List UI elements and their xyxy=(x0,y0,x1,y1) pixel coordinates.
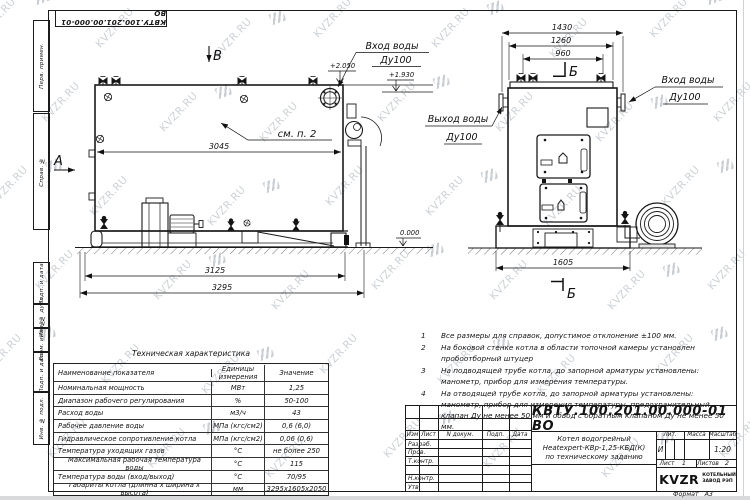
note-item: 2На боковой стенке котла в области топоч… xyxy=(421,343,731,365)
margin-box-vzam: Взам. инв. № xyxy=(33,327,50,353)
margin-box-perv: Перв. примен. xyxy=(33,20,50,112)
table-cell: Гидравлическое сопротивление котла xyxy=(54,433,212,445)
table-cell: Рабочее давление воды xyxy=(54,420,212,432)
sheet-label: Лист xyxy=(658,460,676,467)
spec-table-body: Номинальная мощностьМВт1,25Диапазон рабо… xyxy=(54,381,328,495)
table-row: Температура уходящих газов°Сне более 250 xyxy=(54,444,328,457)
change-col-header: Дата xyxy=(509,432,531,439)
note-text: На подводящей трубе котла, до запорной а… xyxy=(441,366,731,388)
table-cell: 50-100 xyxy=(265,395,328,407)
table-row: Габариты котла (длинна х ширина х высота… xyxy=(54,483,328,496)
scale-label: Масштаб xyxy=(709,432,736,439)
table-cell: 43 xyxy=(265,407,328,419)
stamp-doc-number: КВТУ.100.201.00.000-01 ВО xyxy=(56,10,166,28)
table-cell: Габариты котла (длинна х ширина х высота… xyxy=(54,484,212,496)
margin-box-sprav: Справ. № xyxy=(33,113,50,230)
sheet-edge-bottom xyxy=(0,496,750,500)
margin-box-podp2: Подп. и дата xyxy=(33,351,50,393)
company-name: КОТЕЛЬНЫЙ ЗАВОД РЭП xyxy=(702,473,736,484)
change-col-header: Лист xyxy=(419,432,438,439)
product-name-line: Heatexpert-КВр-1,25-КБД(К) xyxy=(543,444,645,453)
table-cell: МПа (кгс/см2) xyxy=(212,433,265,445)
table-row: Максимальная рабочая температура воды°С1… xyxy=(54,457,328,470)
note-number: 1 xyxy=(421,331,441,342)
note-item: 3На подводящей трубе котла, до запорной … xyxy=(421,366,731,388)
table-row: Гидравлическое сопротивление котлаМПа (к… xyxy=(54,432,328,445)
title-block: КВТУ.100.201.00.000-01 ВО Изм Лист N док… xyxy=(405,405,736,491)
lit-value: И xyxy=(656,439,665,459)
change-col-header: N докум. xyxy=(438,432,482,439)
format-label: Формат xyxy=(673,491,699,498)
table-cell: % xyxy=(212,395,265,407)
table-cell: Расход воды xyxy=(54,407,212,419)
product-name-line: Котел водогрейный xyxy=(557,435,631,444)
margin-box-inv-podl: Инв. № подл. xyxy=(33,391,50,445)
sheet-value: 1 xyxy=(676,459,692,467)
table-cell: °С xyxy=(212,458,265,470)
product-name: Котел водогрейный Heatexpert-КВр-1,25-КБ… xyxy=(532,433,656,464)
table-cell: °С xyxy=(212,445,265,457)
note-number: 3 xyxy=(421,366,441,388)
table-row: Рабочее давление водыМПа (кгс/см2)0,6 (6… xyxy=(54,419,328,432)
top-stamp-doc-number: КВТУ.100.201.00.000-01 ВО xyxy=(55,10,167,27)
note-item: 1Все размеры для справок, допустимое отк… xyxy=(421,331,731,342)
company-name-line: ЗАВОД РЭП xyxy=(702,479,736,485)
company-logo: KVZR КОТЕЛЬНЫЙ ЗАВОД РЭП xyxy=(657,468,735,490)
table-cell: м3/ч xyxy=(212,407,265,419)
table-cell: 0,06 (0,6) xyxy=(265,433,328,445)
table-row: Номинальная мощностьМВт1,25 xyxy=(54,381,328,394)
change-col-header: Изм xyxy=(406,432,419,439)
format-value: А3 xyxy=(705,491,713,498)
table-row: Диапазон рабочего регулирования%50-100 xyxy=(54,394,328,407)
table-cell: 3295х1605х2050 xyxy=(265,484,328,496)
note-text: Все размеры для справок, допустимое откл… xyxy=(441,331,731,342)
mass-label: Масса xyxy=(684,432,709,439)
format-note: Формат А3 xyxy=(648,490,738,499)
sheets-label: Листов xyxy=(697,460,719,467)
table-cell: Номинальная мощность xyxy=(54,382,212,394)
table-cell: 70/95 xyxy=(265,471,328,483)
table-row: Температура воды (вход/выход)°С70/95 xyxy=(54,470,328,483)
margin-label: Подп. и дата xyxy=(39,351,45,393)
table-cell: 115 xyxy=(265,458,328,470)
spec-table: Техническая характеристика Наименование … xyxy=(53,349,329,496)
table-cell: Максимальная рабочая температура воды xyxy=(54,458,212,470)
table-cell: Температура уходящих газов xyxy=(54,445,212,457)
table-header-cell: Наименование показателя xyxy=(54,369,212,377)
note-text: На боковой стенке котла в области топочн… xyxy=(441,343,731,365)
margin-label: Перв. примен. xyxy=(39,43,45,89)
table-cell: не более 250 xyxy=(265,445,328,457)
table-header-cell: Значение xyxy=(265,369,328,377)
sig-row-label: Пров. xyxy=(408,449,440,456)
sheet-edge-right xyxy=(743,0,744,500)
sig-row-label: Т.контр. xyxy=(408,458,440,465)
spec-table-title: Техническая характеристика xyxy=(53,349,329,363)
table-cell: МПа (кгс/см2) xyxy=(212,420,265,432)
product-name-line: по техническому заданию xyxy=(545,453,642,462)
table-cell: 0,6 (6,0) xyxy=(265,420,328,432)
table-cell: Диапазон рабочего регулирования xyxy=(54,395,212,407)
kvzr-logo-text: KVZR xyxy=(659,472,699,487)
table-header-cell: Единицы измерения xyxy=(212,365,265,381)
sig-row-label: Н.контр. xyxy=(408,475,440,482)
note-number: 2 xyxy=(421,343,441,365)
table-cell: °С xyxy=(212,471,265,483)
change-col-header: Подп. xyxy=(482,432,509,439)
table-cell: Температура воды (вход/выход) xyxy=(54,471,212,483)
table-cell: мм xyxy=(212,484,265,496)
table-cell: МВт xyxy=(212,382,265,394)
lit-label: Лит. xyxy=(656,432,684,439)
table-cell: 1,25 xyxy=(265,382,328,394)
margin-label: Справ. № xyxy=(39,157,45,187)
scale-value: 1:20 xyxy=(709,439,736,459)
drawing-sheet: KVZR.RUKVZR.RUKVZR.RUKVZR.RUKVZR.RUKVZR.… xyxy=(0,0,750,500)
sig-row-label: Разраб. xyxy=(408,441,440,448)
title-doc-number: КВТУ.100.201.00.000-01 ВО xyxy=(532,406,736,431)
sig-row-label: Утв. xyxy=(408,484,440,491)
sheets-value: 2 xyxy=(720,459,734,467)
table-row: Расход водым3/ч43 xyxy=(54,406,328,419)
margin-label: Инв. № подл. xyxy=(39,397,45,439)
table-header-row: Наименование показателя Единицы измерени… xyxy=(54,364,328,381)
